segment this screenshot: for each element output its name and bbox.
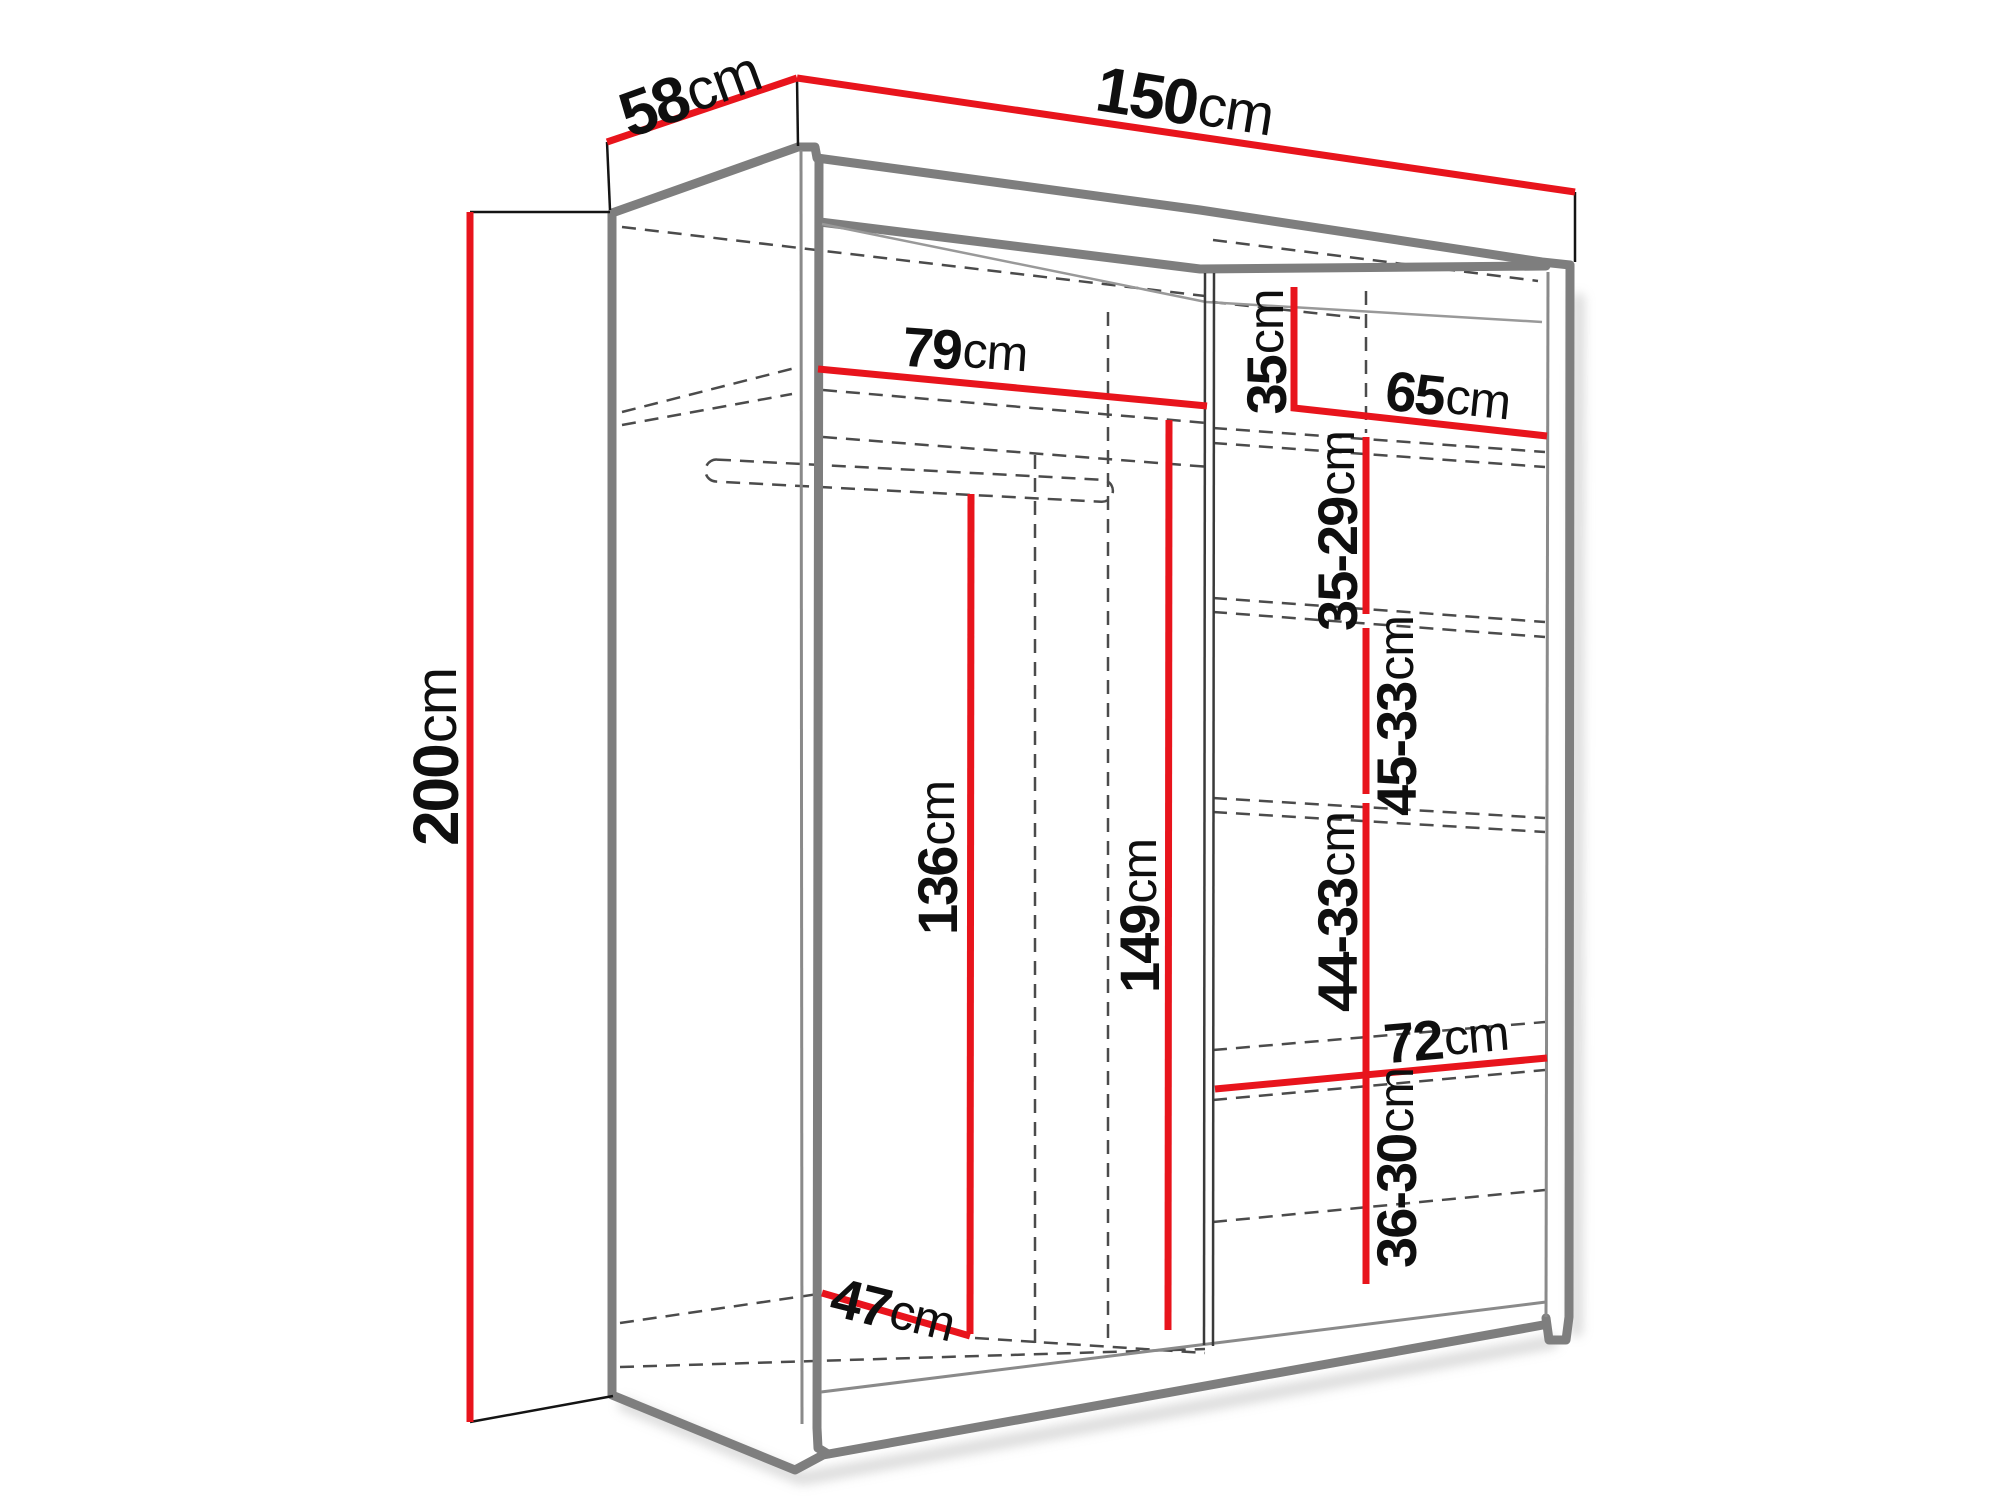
left-floor-dashed-a [620, 1294, 818, 1323]
label-149-unit: cm [1111, 839, 1167, 904]
front-left-inner-edge [817, 158, 828, 1454]
label-height: 200cm [400, 668, 472, 846]
bottom-edge-shadow [805, 1342, 1552, 1478]
left-floor-dashed-b [620, 1349, 1205, 1367]
label-79-unit: cm [961, 322, 1029, 382]
top-shelf-side-edge-a [622, 368, 795, 412]
label-depth: 58cm [610, 34, 770, 151]
front-left-outer-edge [801, 150, 802, 1424]
label-45-33-unit: cm [1368, 616, 1424, 681]
label-65-number: 65 [1383, 358, 1448, 427]
crown-left-top-edge [612, 147, 798, 213]
label-left-section-width: 79cm [900, 314, 1029, 386]
label-height-unit: cm [404, 668, 469, 743]
label-width-unit: cm [1193, 72, 1278, 148]
depth-left-extension [607, 142, 610, 210]
right-shelf-1-edge-b [1213, 443, 1545, 467]
top-shelf-back-edge [823, 437, 1210, 467]
center-divider-right-edge [1213, 273, 1214, 1346]
ceiling-back-dashed-right [1213, 240, 1538, 281]
top-shelf-side-edge-b [622, 394, 792, 425]
label-shelf-gap-1: 35-29cm [1306, 431, 1369, 631]
label-72-unit: cm [1441, 1005, 1510, 1066]
crown-front-top-edge [798, 147, 1570, 265]
label-35-number: 35 [1235, 355, 1298, 414]
label-35-unit: cm [1238, 290, 1294, 355]
label-136-number: 136 [906, 847, 969, 935]
right-side-outer-edge [1546, 265, 1570, 1340]
label-36-30-unit: cm [1368, 1068, 1424, 1133]
label-height-number: 200 [400, 745, 472, 846]
label-47-unit: cm [884, 1282, 960, 1352]
label-65-unit: cm [1443, 368, 1513, 430]
label-36-30-number: 36-30 [1365, 1135, 1428, 1268]
dimension-line-136 [970, 494, 971, 1334]
label-136-unit: cm [909, 781, 965, 846]
label-149-number: 149 [1108, 905, 1171, 993]
label-width: 150cm [1091, 53, 1278, 152]
label-shelf-gap-3: 44-33cm [1306, 812, 1369, 1012]
label-72-number: 72 [1381, 1007, 1445, 1075]
label-45-33-number: 45-33 [1365, 682, 1428, 816]
height-bottom-extension [470, 1396, 613, 1422]
label-44-33-number: 44-33 [1306, 878, 1369, 1012]
label-79-number: 79 [900, 314, 963, 381]
diagram-canvas: 58cm 150cm 200cm 79cm 35cm 65cm 35-29cm … [0, 0, 2000, 1500]
label-top-shelf-height: 35cm [1235, 290, 1298, 415]
label-floor-depth: 47cm [825, 1264, 961, 1355]
label-hanging-height: 136cm [906, 781, 969, 935]
top-shelf-front-bottom-edge [823, 390, 1207, 423]
hanging-rod [705, 459, 1114, 502]
bottom-left-shadow [625, 1405, 800, 1478]
left-floor-dashed-c [975, 1338, 1205, 1353]
label-35-29-unit: cm [1309, 431, 1365, 496]
wardrobe-dimension-diagram: 58cm 150cm 200cm 79cm 35cm 65cm 35-29cm … [0, 0, 2000, 1500]
depth-apex-extension [797, 78, 798, 146]
label-shelf-gap-2: 45-33cm [1365, 616, 1428, 816]
right-edge-shadow [1576, 300, 1578, 1330]
center-divider-left-edge [1204, 273, 1205, 1345]
dimension-line-149 [1168, 420, 1169, 1330]
label-bottom-shelf-height: 36-30cm [1365, 1068, 1428, 1268]
label-right-section-width: 65cm [1383, 358, 1514, 434]
label-center-height: 149cm [1108, 839, 1171, 993]
label-35-29-number: 35-29 [1306, 497, 1369, 631]
right-side-inner-edge [1546, 272, 1548, 1317]
label-44-33-unit: cm [1309, 812, 1365, 877]
